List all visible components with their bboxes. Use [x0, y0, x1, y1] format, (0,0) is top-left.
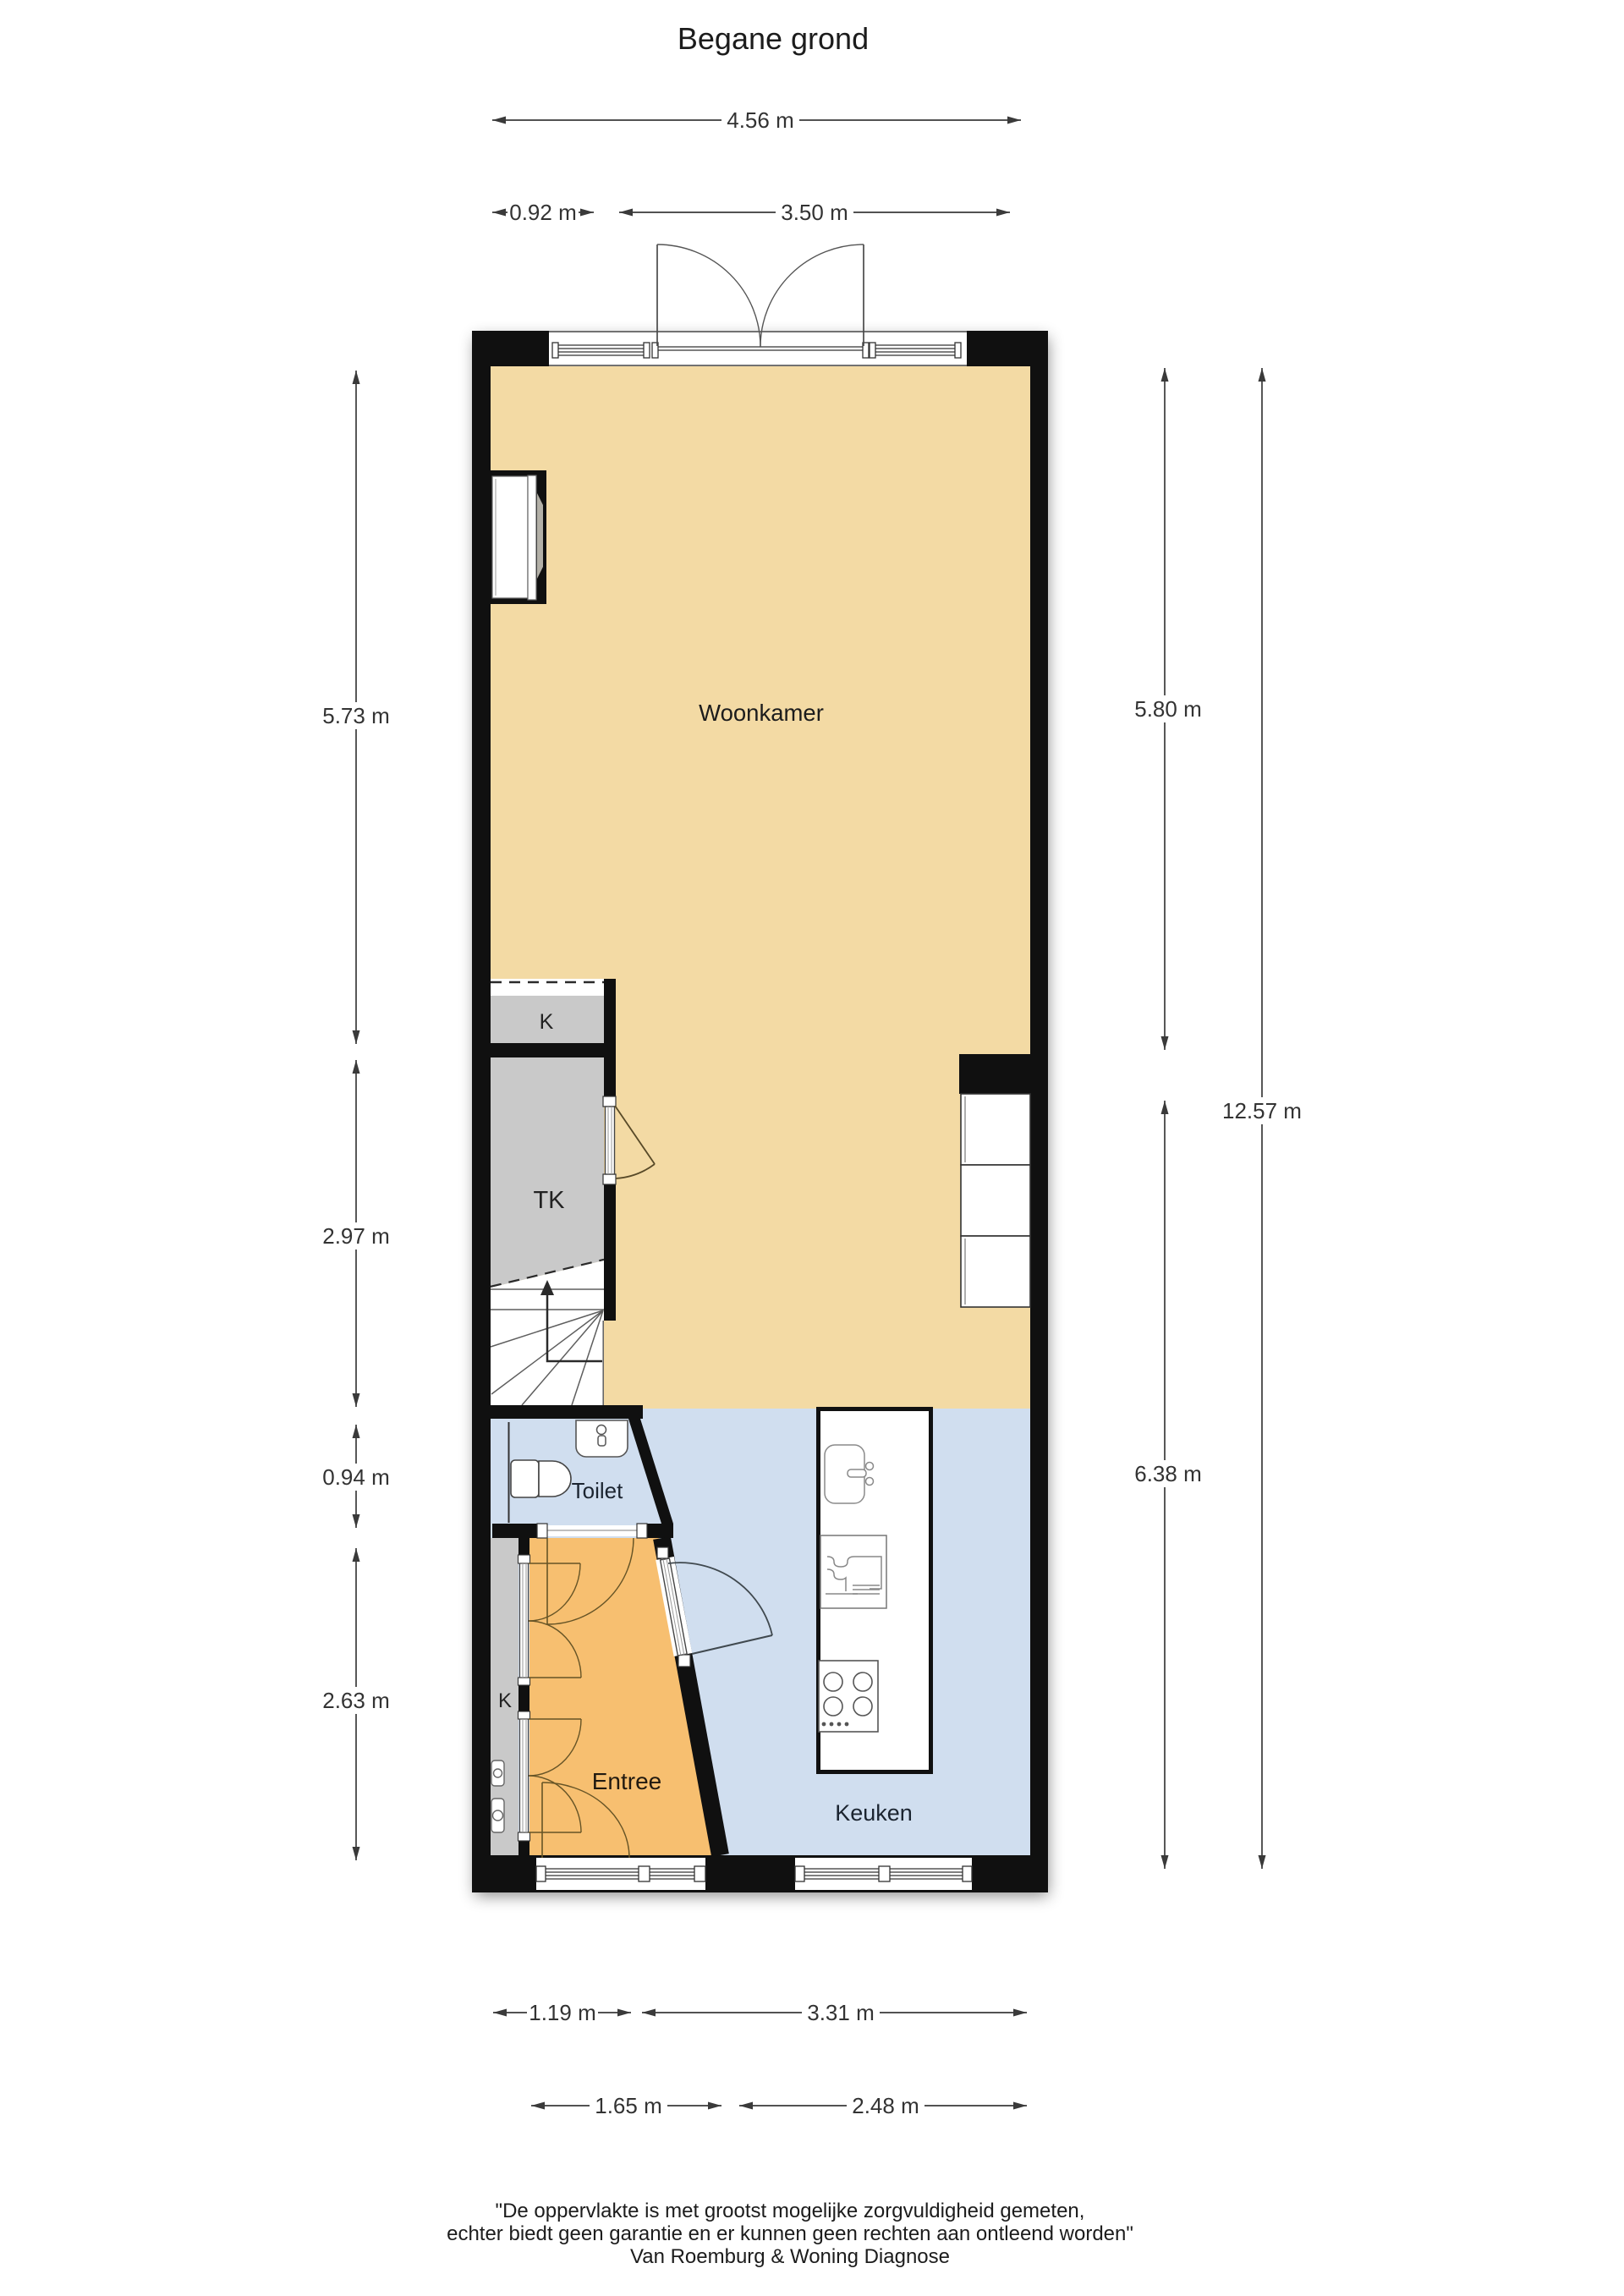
svg-text:1.65 m: 1.65 m [595, 2093, 662, 2118]
svg-text:4.56 m: 4.56 m [727, 107, 794, 133]
svg-text:2.48 m: 2.48 m [852, 2093, 919, 2118]
svg-text:Woonkamer: Woonkamer [699, 700, 824, 726]
svg-text:12.57 m: 12.57 m [1222, 1098, 1302, 1123]
svg-text:"De oppervlakte is met grootst: "De oppervlakte is met grootst mogelijke… [496, 2200, 1085, 2222]
svg-text:Entree: Entree [592, 1768, 662, 1794]
svg-text:6.38 m: 6.38 m [1134, 1461, 1202, 1486]
svg-text:Begane grond: Begane grond [678, 21, 869, 56]
svg-text:K: K [498, 1689, 512, 1712]
svg-text:3.31 m: 3.31 m [807, 2000, 875, 2025]
svg-text:0.92 m: 0.92 m [509, 200, 577, 225]
svg-text:Toilet: Toilet [572, 1478, 623, 1503]
svg-text:Keuken: Keuken [835, 1800, 913, 1826]
svg-text:K: K [540, 1010, 554, 1034]
svg-text:TK: TK [533, 1187, 565, 1214]
svg-text:2.63 m: 2.63 m [322, 1688, 390, 1713]
svg-text:Van Roemburg & Woning Diagnose: Van Roemburg & Woning Diagnose [630, 2245, 950, 2268]
svg-text:2.97 m: 2.97 m [322, 1223, 390, 1249]
svg-text:5.80 m: 5.80 m [1134, 696, 1202, 722]
svg-text:3.50 m: 3.50 m [781, 200, 848, 225]
svg-text:echter biedt geen garantie en: echter biedt geen garantie en er kunnen … [447, 2222, 1133, 2245]
svg-text:1.19 m: 1.19 m [529, 2000, 596, 2025]
svg-text:5.73 m: 5.73 m [322, 703, 390, 728]
svg-text:0.94 m: 0.94 m [322, 1464, 390, 1490]
